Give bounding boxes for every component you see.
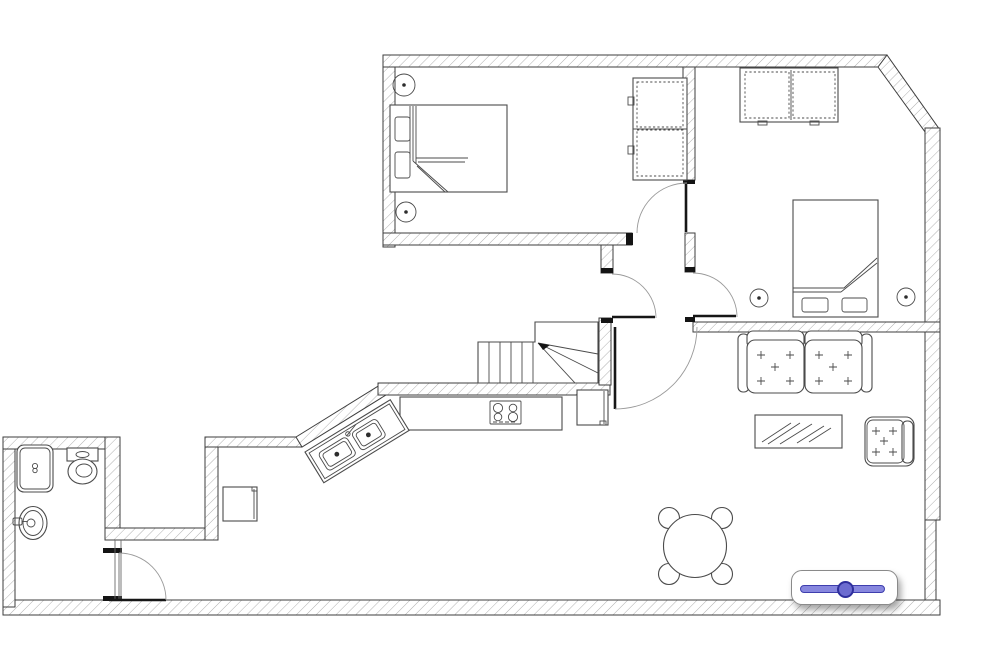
sofa-arm-right [861, 334, 872, 392]
sofa-seat-cushion [805, 340, 862, 393]
armchair [865, 417, 914, 466]
light-dot [904, 295, 908, 299]
door-swing-arc [637, 183, 687, 233]
door-living [615, 327, 697, 409]
ceiling-light [750, 289, 768, 307]
door-jamb [685, 317, 695, 322]
dining-table [664, 515, 727, 578]
ceiling-light [396, 202, 416, 222]
door-bedroom1 [637, 183, 687, 233]
wall-bathroom-right [105, 437, 120, 538]
door-swing-arc [693, 273, 737, 317]
stair-outline [478, 322, 598, 383]
sofa-seat-cushion [747, 340, 804, 393]
door-swing-arc [119, 553, 166, 600]
staircase [478, 322, 598, 383]
door-jamb [103, 548, 122, 553]
fridge-body [577, 390, 608, 425]
door-hall [612, 274, 656, 318]
floor-plan-canvas [0, 0, 1000, 667]
layer-bedroom1 [390, 74, 687, 222]
light-dot [757, 296, 761, 300]
bed-frame [793, 200, 878, 317]
wall-right-lower [925, 520, 936, 605]
wall-nook-right [205, 437, 218, 540]
light-dot [404, 210, 408, 214]
kitchen-counter [400, 397, 562, 430]
table-top [755, 415, 842, 448]
light-dot [402, 83, 406, 87]
bed-1 [390, 105, 507, 192]
layer-dining [659, 508, 733, 585]
sofa [738, 331, 872, 393]
door-jamb [685, 267, 695, 272]
layer-kitchen [223, 390, 608, 521]
door-jamb [601, 268, 613, 273]
slider-widget[interactable] [791, 570, 898, 605]
wardrobe-bedroom2 [740, 68, 838, 125]
ceiling-light [393, 74, 415, 96]
coffee-table [755, 415, 842, 448]
door-swing-arc [615, 327, 697, 409]
floor-plan-stage [0, 0, 1000, 667]
layer-bedroom2 [740, 68, 915, 317]
layer-living-room [738, 331, 914, 466]
hall-cabinet [223, 487, 257, 521]
layer-stairs [478, 322, 598, 383]
door-bedroom2 [693, 273, 737, 317]
wash-basin [13, 507, 47, 540]
fridge [577, 390, 608, 425]
door-swing-arc [612, 274, 656, 318]
wardrobe-bedroom1 [628, 78, 687, 180]
wall-kitchen-top [378, 383, 610, 395]
wall-chamfer [878, 55, 940, 136]
wall-bedroom1-bottom [383, 233, 632, 245]
door-jamb [626, 233, 633, 245]
shower-tray [17, 445, 53, 492]
ceiling-light [897, 288, 915, 306]
wall-nook-bottom [105, 528, 218, 540]
wall-top [383, 55, 887, 67]
cabinet-body [223, 487, 257, 521]
toilet-bowl [68, 459, 97, 484]
layer-bathroom [13, 445, 98, 540]
wall-entry-top [205, 437, 302, 447]
bed-frame [390, 105, 507, 192]
toilet [67, 448, 98, 484]
wall-hall-west-lower [599, 318, 611, 385]
slider-knob-handle[interactable] [837, 581, 854, 598]
door-jamb [601, 318, 613, 323]
bed-2 [793, 200, 878, 317]
wall-hall-east [685, 233, 695, 272]
